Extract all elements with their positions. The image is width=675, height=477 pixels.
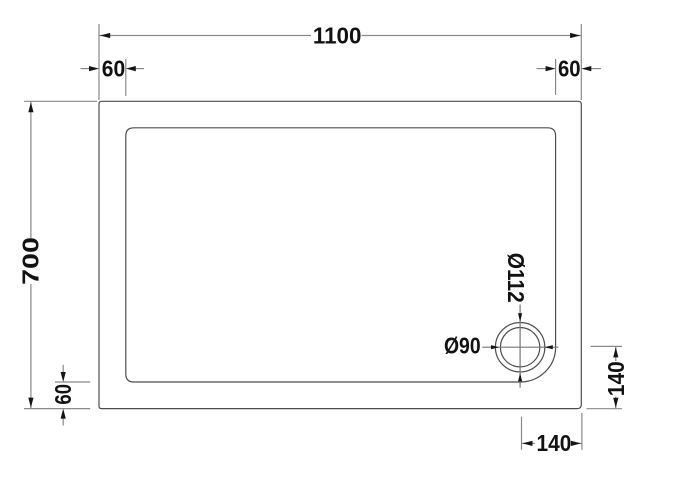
svg-text:Ø90: Ø90 xyxy=(444,333,481,359)
svg-text:700: 700 xyxy=(18,237,44,285)
svg-text:60: 60 xyxy=(558,56,581,82)
svg-text:Ø112: Ø112 xyxy=(503,253,529,303)
svg-text:60: 60 xyxy=(50,384,76,405)
svg-text:1100: 1100 xyxy=(313,23,362,49)
svg-text:140: 140 xyxy=(603,361,629,396)
svg-text:140: 140 xyxy=(537,430,572,456)
svg-text:60: 60 xyxy=(102,56,125,82)
